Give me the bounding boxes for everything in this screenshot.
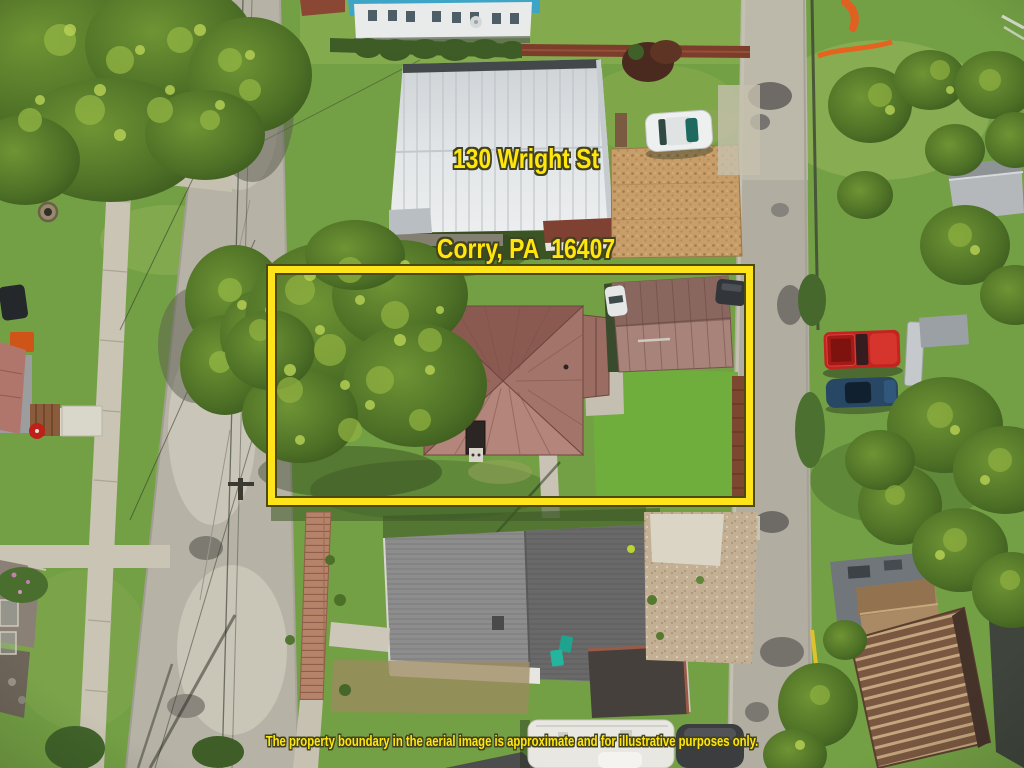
aerial-photo: 130 Wright St Corry, PA 16407 The proper… xyxy=(0,0,1024,768)
address-line1: 130 Wright St xyxy=(106,144,946,174)
disclaimer-overlay: The property boundary in the aerial imag… xyxy=(113,734,912,750)
address-overlay: 130 Wright St Corry, PA 16407 xyxy=(106,84,946,294)
address-line2: Corry, PA 16407 xyxy=(106,234,946,264)
